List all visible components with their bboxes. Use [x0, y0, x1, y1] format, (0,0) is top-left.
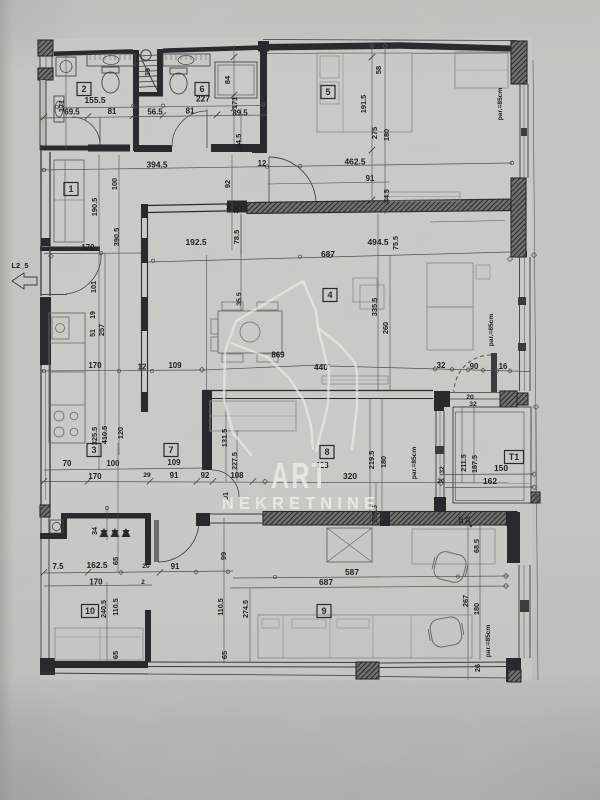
svg-text:39: 39 [143, 68, 152, 76]
svg-text:91: 91 [366, 174, 375, 183]
svg-text:150: 150 [494, 463, 508, 473]
svg-text:44.5: 44.5 [384, 189, 391, 203]
svg-text:190.5: 190.5 [90, 198, 99, 217]
svg-text:462.5: 462.5 [345, 157, 366, 167]
svg-text:275: 275 [370, 127, 379, 139]
svg-text:587: 587 [345, 567, 359, 577]
svg-text:187.5: 187.5 [470, 455, 479, 473]
svg-text:par.=85cm: par.=85cm [485, 625, 492, 658]
svg-text:32: 32 [439, 466, 446, 474]
svg-text:170: 170 [88, 361, 102, 370]
svg-text:84: 84 [223, 75, 232, 84]
svg-text:35.5: 35.5 [236, 292, 243, 305]
svg-text:109: 109 [167, 458, 181, 467]
svg-text:240.5: 240.5 [99, 600, 108, 618]
svg-text:170: 170 [81, 243, 95, 252]
svg-text:227.5: 227.5 [232, 452, 239, 470]
svg-text:69.5: 69.5 [64, 108, 80, 117]
svg-text:131.5: 131.5 [220, 429, 229, 448]
svg-text:219.5: 219.5 [367, 451, 376, 470]
svg-text:20: 20 [233, 206, 240, 213]
svg-text:390.5: 390.5 [112, 228, 121, 247]
svg-text:325.5: 325.5 [90, 427, 99, 446]
svg-text:394.5: 394.5 [147, 160, 168, 170]
svg-text:120: 120 [116, 427, 125, 439]
svg-text:155.5: 155.5 [85, 95, 106, 105]
svg-text:171: 171 [57, 100, 66, 112]
svg-text:1: 1 [68, 184, 73, 194]
svg-text:58: 58 [374, 66, 383, 74]
svg-text:110.5: 110.5 [111, 598, 120, 616]
svg-text:170: 170 [89, 578, 103, 587]
svg-text:NEKRETNINE: NEKRETNINE [222, 492, 380, 513]
svg-text:56.5: 56.5 [147, 108, 163, 117]
svg-text:81: 81 [108, 107, 117, 116]
svg-text:16: 16 [499, 362, 508, 371]
svg-text:687: 687 [321, 249, 335, 259]
svg-text:687: 687 [319, 577, 333, 587]
svg-text:7: 7 [168, 445, 173, 455]
svg-text:75.5: 75.5 [391, 236, 400, 250]
svg-text:T1: T1 [509, 452, 520, 462]
svg-text:par.=85cm: par.=85cm [497, 88, 504, 121]
svg-text:34: 34 [90, 527, 99, 535]
svg-text:par.=85cm: par.=85cm [411, 447, 418, 480]
svg-text:100: 100 [110, 178, 119, 190]
svg-text:108: 108 [230, 471, 244, 480]
svg-text:32: 32 [469, 401, 477, 408]
svg-text:180: 180 [379, 456, 388, 468]
svg-text:20: 20 [466, 394, 474, 401]
svg-text:9: 9 [321, 606, 326, 616]
svg-text:4: 4 [327, 290, 332, 300]
svg-text:70: 70 [63, 459, 72, 468]
svg-text:32: 32 [465, 516, 472, 524]
svg-text:92: 92 [223, 180, 232, 188]
svg-text:5: 5 [325, 87, 330, 97]
svg-text:99: 99 [219, 552, 228, 560]
svg-text:170: 170 [88, 472, 102, 481]
svg-text:410.5: 410.5 [100, 426, 109, 445]
svg-text:10: 10 [85, 606, 95, 616]
svg-text:65: 65 [111, 651, 120, 659]
svg-text:20: 20 [437, 478, 445, 485]
svg-text:2: 2 [141, 579, 145, 586]
svg-text:320: 320 [343, 471, 357, 481]
svg-text:65: 65 [220, 651, 229, 659]
svg-text:90: 90 [470, 362, 479, 371]
svg-text:192.5: 192.5 [186, 237, 207, 247]
svg-text:20: 20 [458, 516, 465, 524]
svg-text:180: 180 [472, 603, 481, 615]
svg-text:ART: ART [271, 456, 329, 497]
svg-text:20: 20 [226, 203, 233, 210]
svg-text:274.5: 274.5 [241, 600, 250, 618]
svg-text:110.5: 110.5 [216, 598, 225, 616]
svg-text:78.5: 78.5 [232, 230, 241, 244]
svg-text:L2_5: L2_5 [11, 261, 28, 270]
svg-text:869: 869 [271, 351, 285, 360]
svg-text:180: 180 [382, 129, 391, 141]
svg-text:267: 267 [461, 595, 470, 607]
svg-text:91: 91 [170, 471, 179, 480]
svg-text:81: 81 [186, 107, 195, 116]
svg-text:68.5: 68.5 [472, 539, 481, 553]
svg-text:32: 32 [437, 361, 446, 370]
svg-text:162.5: 162.5 [87, 560, 108, 570]
svg-text:6: 6 [199, 84, 204, 94]
svg-text:335.5: 335.5 [370, 298, 379, 317]
svg-text:91: 91 [171, 562, 180, 571]
svg-text:162: 162 [483, 476, 497, 486]
svg-text:12: 12 [138, 363, 147, 372]
svg-text:3: 3 [91, 445, 96, 455]
svg-text:29: 29 [143, 472, 151, 479]
svg-text:2: 2 [81, 84, 86, 94]
svg-text:257: 257 [97, 324, 106, 336]
svg-text:101: 101 [89, 281, 98, 293]
svg-text:92: 92 [201, 471, 210, 480]
svg-text:19: 19 [90, 311, 97, 319]
svg-text:7.5: 7.5 [53, 562, 65, 571]
svg-text:191.5: 191.5 [359, 95, 368, 114]
svg-text:260: 260 [381, 322, 390, 334]
svg-text:109: 109 [168, 361, 182, 370]
svg-text:94.5: 94.5 [234, 134, 243, 148]
svg-text:20: 20 [142, 563, 150, 570]
svg-text:51: 51 [90, 329, 97, 337]
svg-text:par.=85cm: par.=85cm [488, 314, 495, 347]
svg-text:65: 65 [111, 557, 120, 565]
svg-text:26: 26 [473, 664, 482, 672]
svg-text:211.5: 211.5 [459, 454, 468, 472]
